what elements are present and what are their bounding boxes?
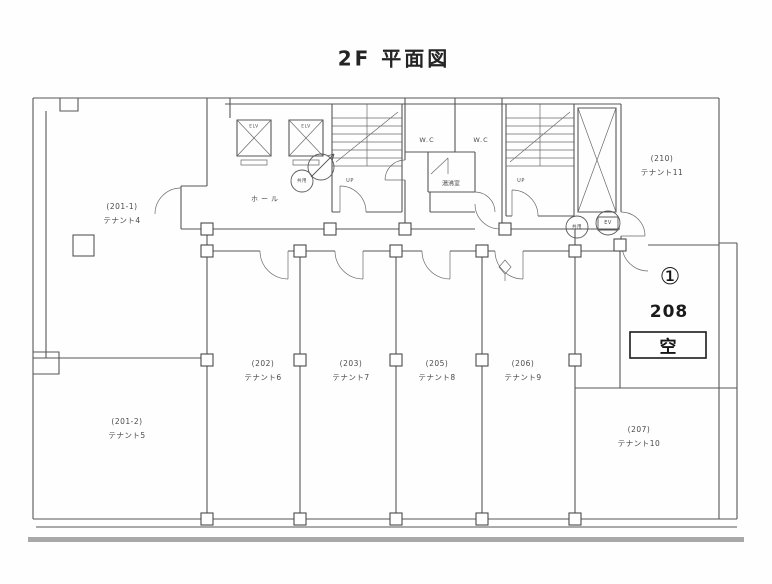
page-title: 2F 平面図 bbox=[338, 43, 451, 72]
hall-label: ホール bbox=[251, 194, 281, 204]
ev-stamp-label: EV bbox=[604, 220, 612, 226]
vacant-room-marker: ① bbox=[660, 264, 681, 290]
room-number: (201-2) bbox=[108, 415, 145, 429]
room-label-210: (210) テナント11 bbox=[641, 152, 684, 180]
elevator-left-label: ELV bbox=[249, 125, 258, 130]
page-edge-shadow bbox=[28, 537, 744, 542]
wc-right-label: W.C bbox=[473, 136, 488, 144]
floorplan-drawing bbox=[0, 0, 772, 584]
room-tenant: テナント10 bbox=[618, 437, 661, 451]
room-tenant: テナント11 bbox=[641, 166, 684, 180]
shared-stamp-left-label: 共用 bbox=[297, 178, 307, 184]
stair-right-icon bbox=[506, 104, 574, 216]
room-tenant: テナント9 bbox=[504, 371, 541, 385]
elevator-right-label: ELV bbox=[301, 125, 310, 130]
room-label-206: (206) テナント9 bbox=[504, 357, 541, 385]
room-tenant: テナント5 bbox=[108, 429, 145, 443]
partition-walls bbox=[33, 98, 737, 519]
room-tenant: テナント8 bbox=[418, 371, 455, 385]
outer-walls bbox=[28, 98, 744, 542]
room-label-201-1: (201-1) テナント4 bbox=[103, 200, 140, 228]
wc-left-label: W.C bbox=[419, 136, 434, 144]
corridor-symbol bbox=[499, 260, 511, 281]
shared-stamp-right-label: 共用 bbox=[572, 224, 582, 230]
room-column-icon bbox=[73, 235, 94, 256]
room-number: (210) bbox=[641, 152, 684, 166]
stair-right-up-label: UP bbox=[517, 178, 525, 184]
kitchenette-label: 湯沸室 bbox=[442, 179, 460, 188]
vacant-room-number: 208 bbox=[650, 302, 689, 322]
stair-left-up-label: UP bbox=[346, 178, 354, 184]
void-shaft-icon bbox=[578, 108, 616, 212]
room-label-207: (207) テナント10 bbox=[618, 423, 661, 451]
room-number: (201-1) bbox=[103, 200, 140, 214]
room-label-201-2: (201-2) テナント5 bbox=[108, 415, 145, 443]
room-number: (203) bbox=[332, 357, 369, 371]
room-tenant: テナント4 bbox=[103, 214, 140, 228]
room-tenant: テナント7 bbox=[332, 371, 369, 385]
room-number: (207) bbox=[618, 423, 661, 437]
room-number: (206) bbox=[504, 357, 541, 371]
room-number: (202) bbox=[244, 357, 281, 371]
floorplan-page: 2F 平面図 (201-1) テナント4 (201-2) テナント5 (202)… bbox=[0, 0, 772, 584]
room-label-203: (203) テナント7 bbox=[332, 357, 369, 385]
stair-left-icon bbox=[332, 104, 402, 212]
elevator-shafts-icon bbox=[230, 98, 323, 165]
room-label-205: (205) テナント8 bbox=[418, 357, 455, 385]
room-label-202: (202) テナント6 bbox=[244, 357, 281, 385]
vacant-room-status: 空 bbox=[660, 333, 677, 358]
room-number: (205) bbox=[418, 357, 455, 371]
room-tenant: テナント6 bbox=[244, 371, 281, 385]
